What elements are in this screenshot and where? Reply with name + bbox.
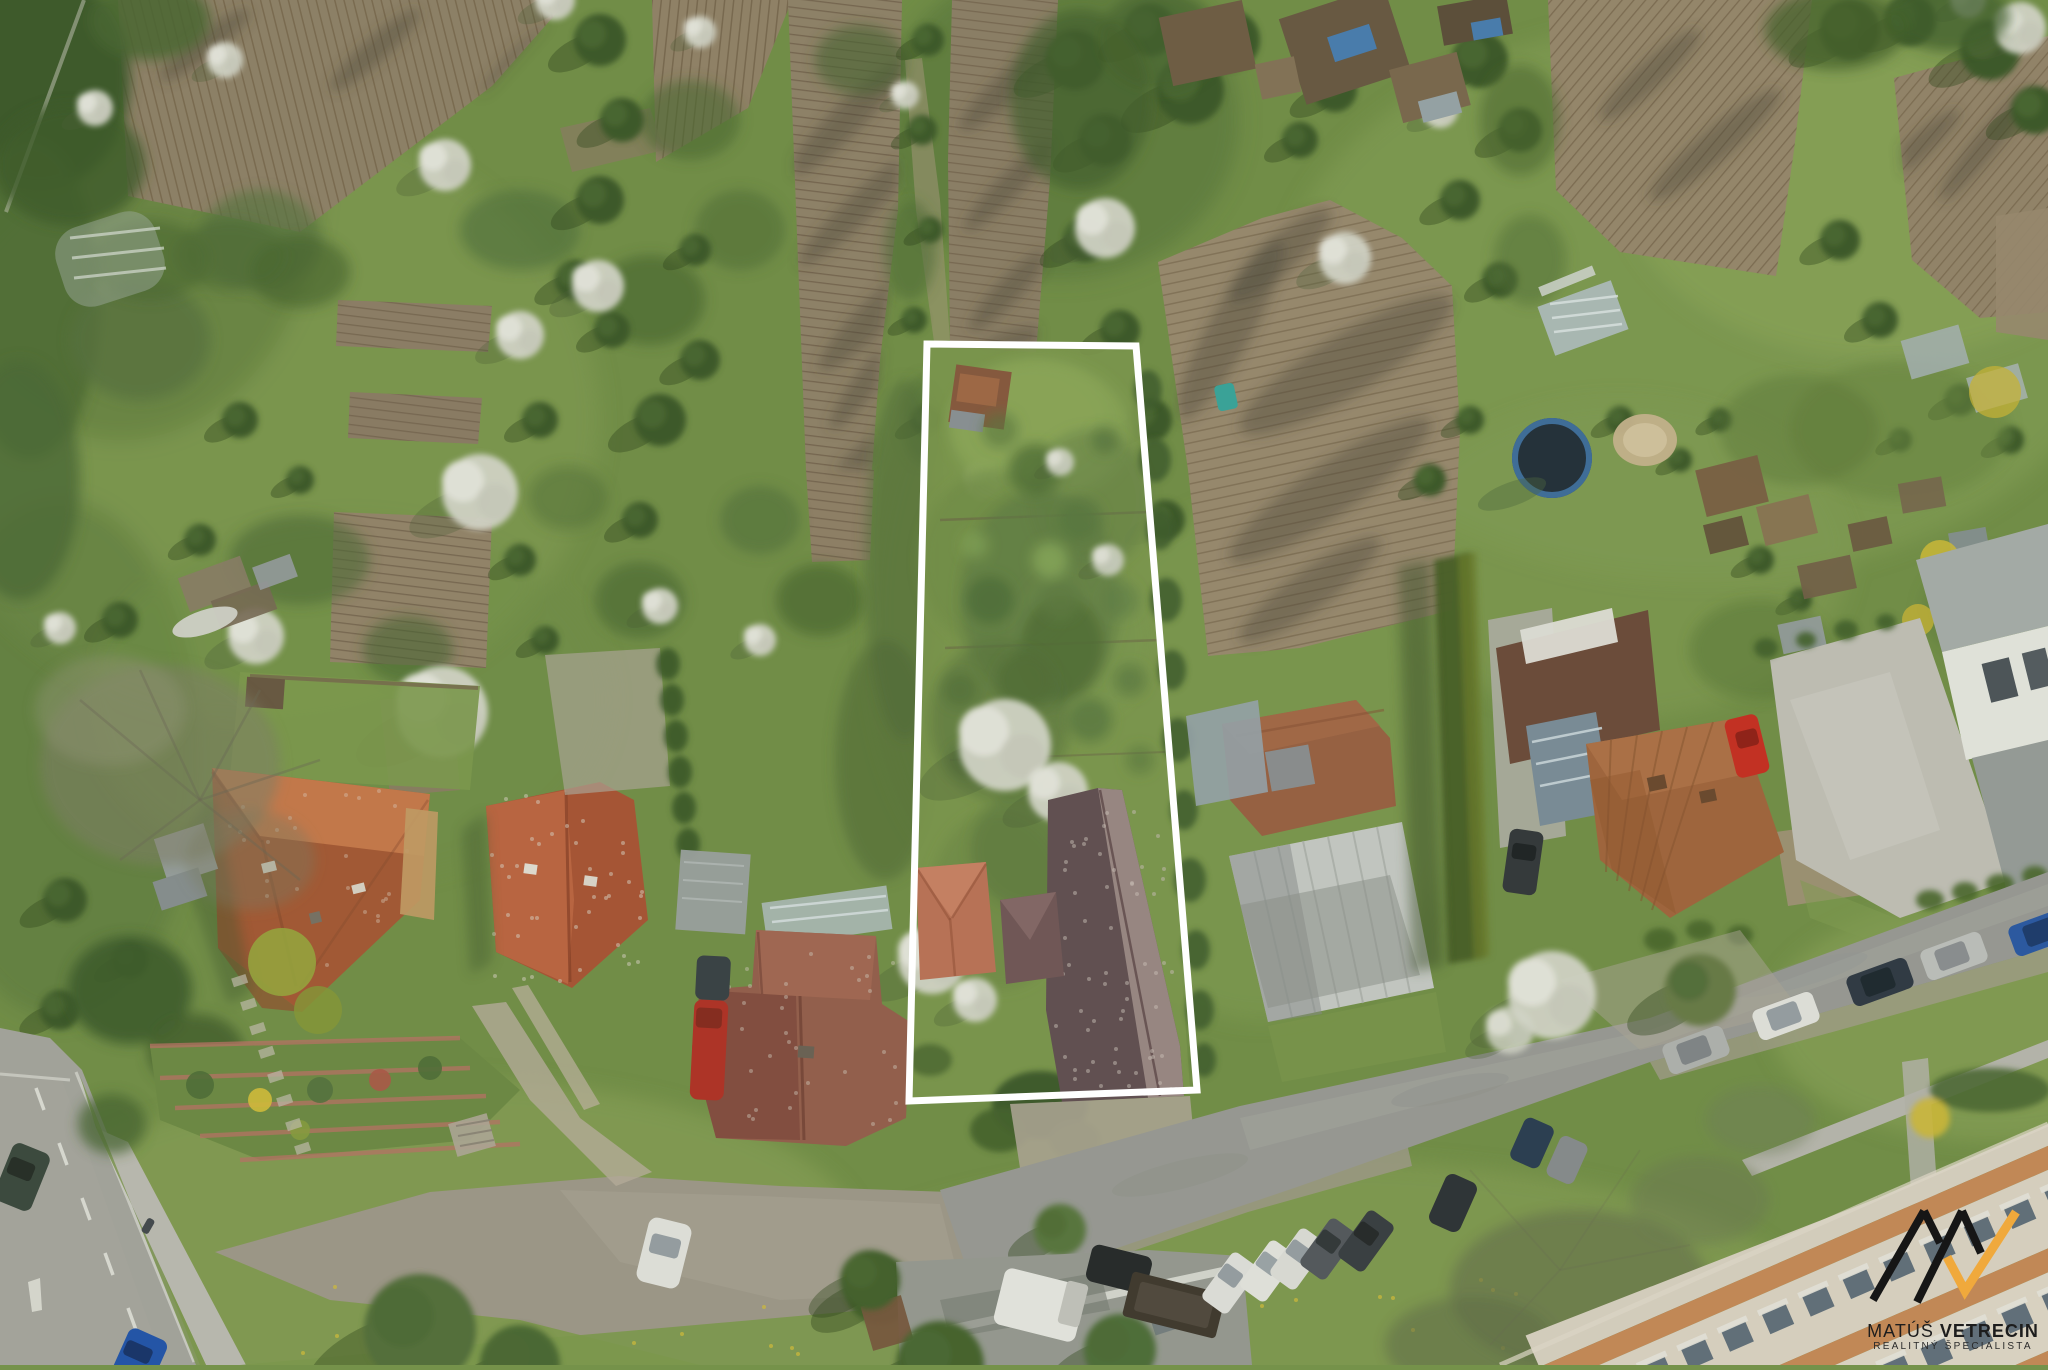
svg-text:REALITNÝ ŠPECIALISTA: REALITNÝ ŠPECIALISTA	[1873, 1339, 2032, 1352]
svg-text:MATÚŠ VETRECIN: MATÚŠ VETRECIN	[1867, 1320, 2039, 1341]
